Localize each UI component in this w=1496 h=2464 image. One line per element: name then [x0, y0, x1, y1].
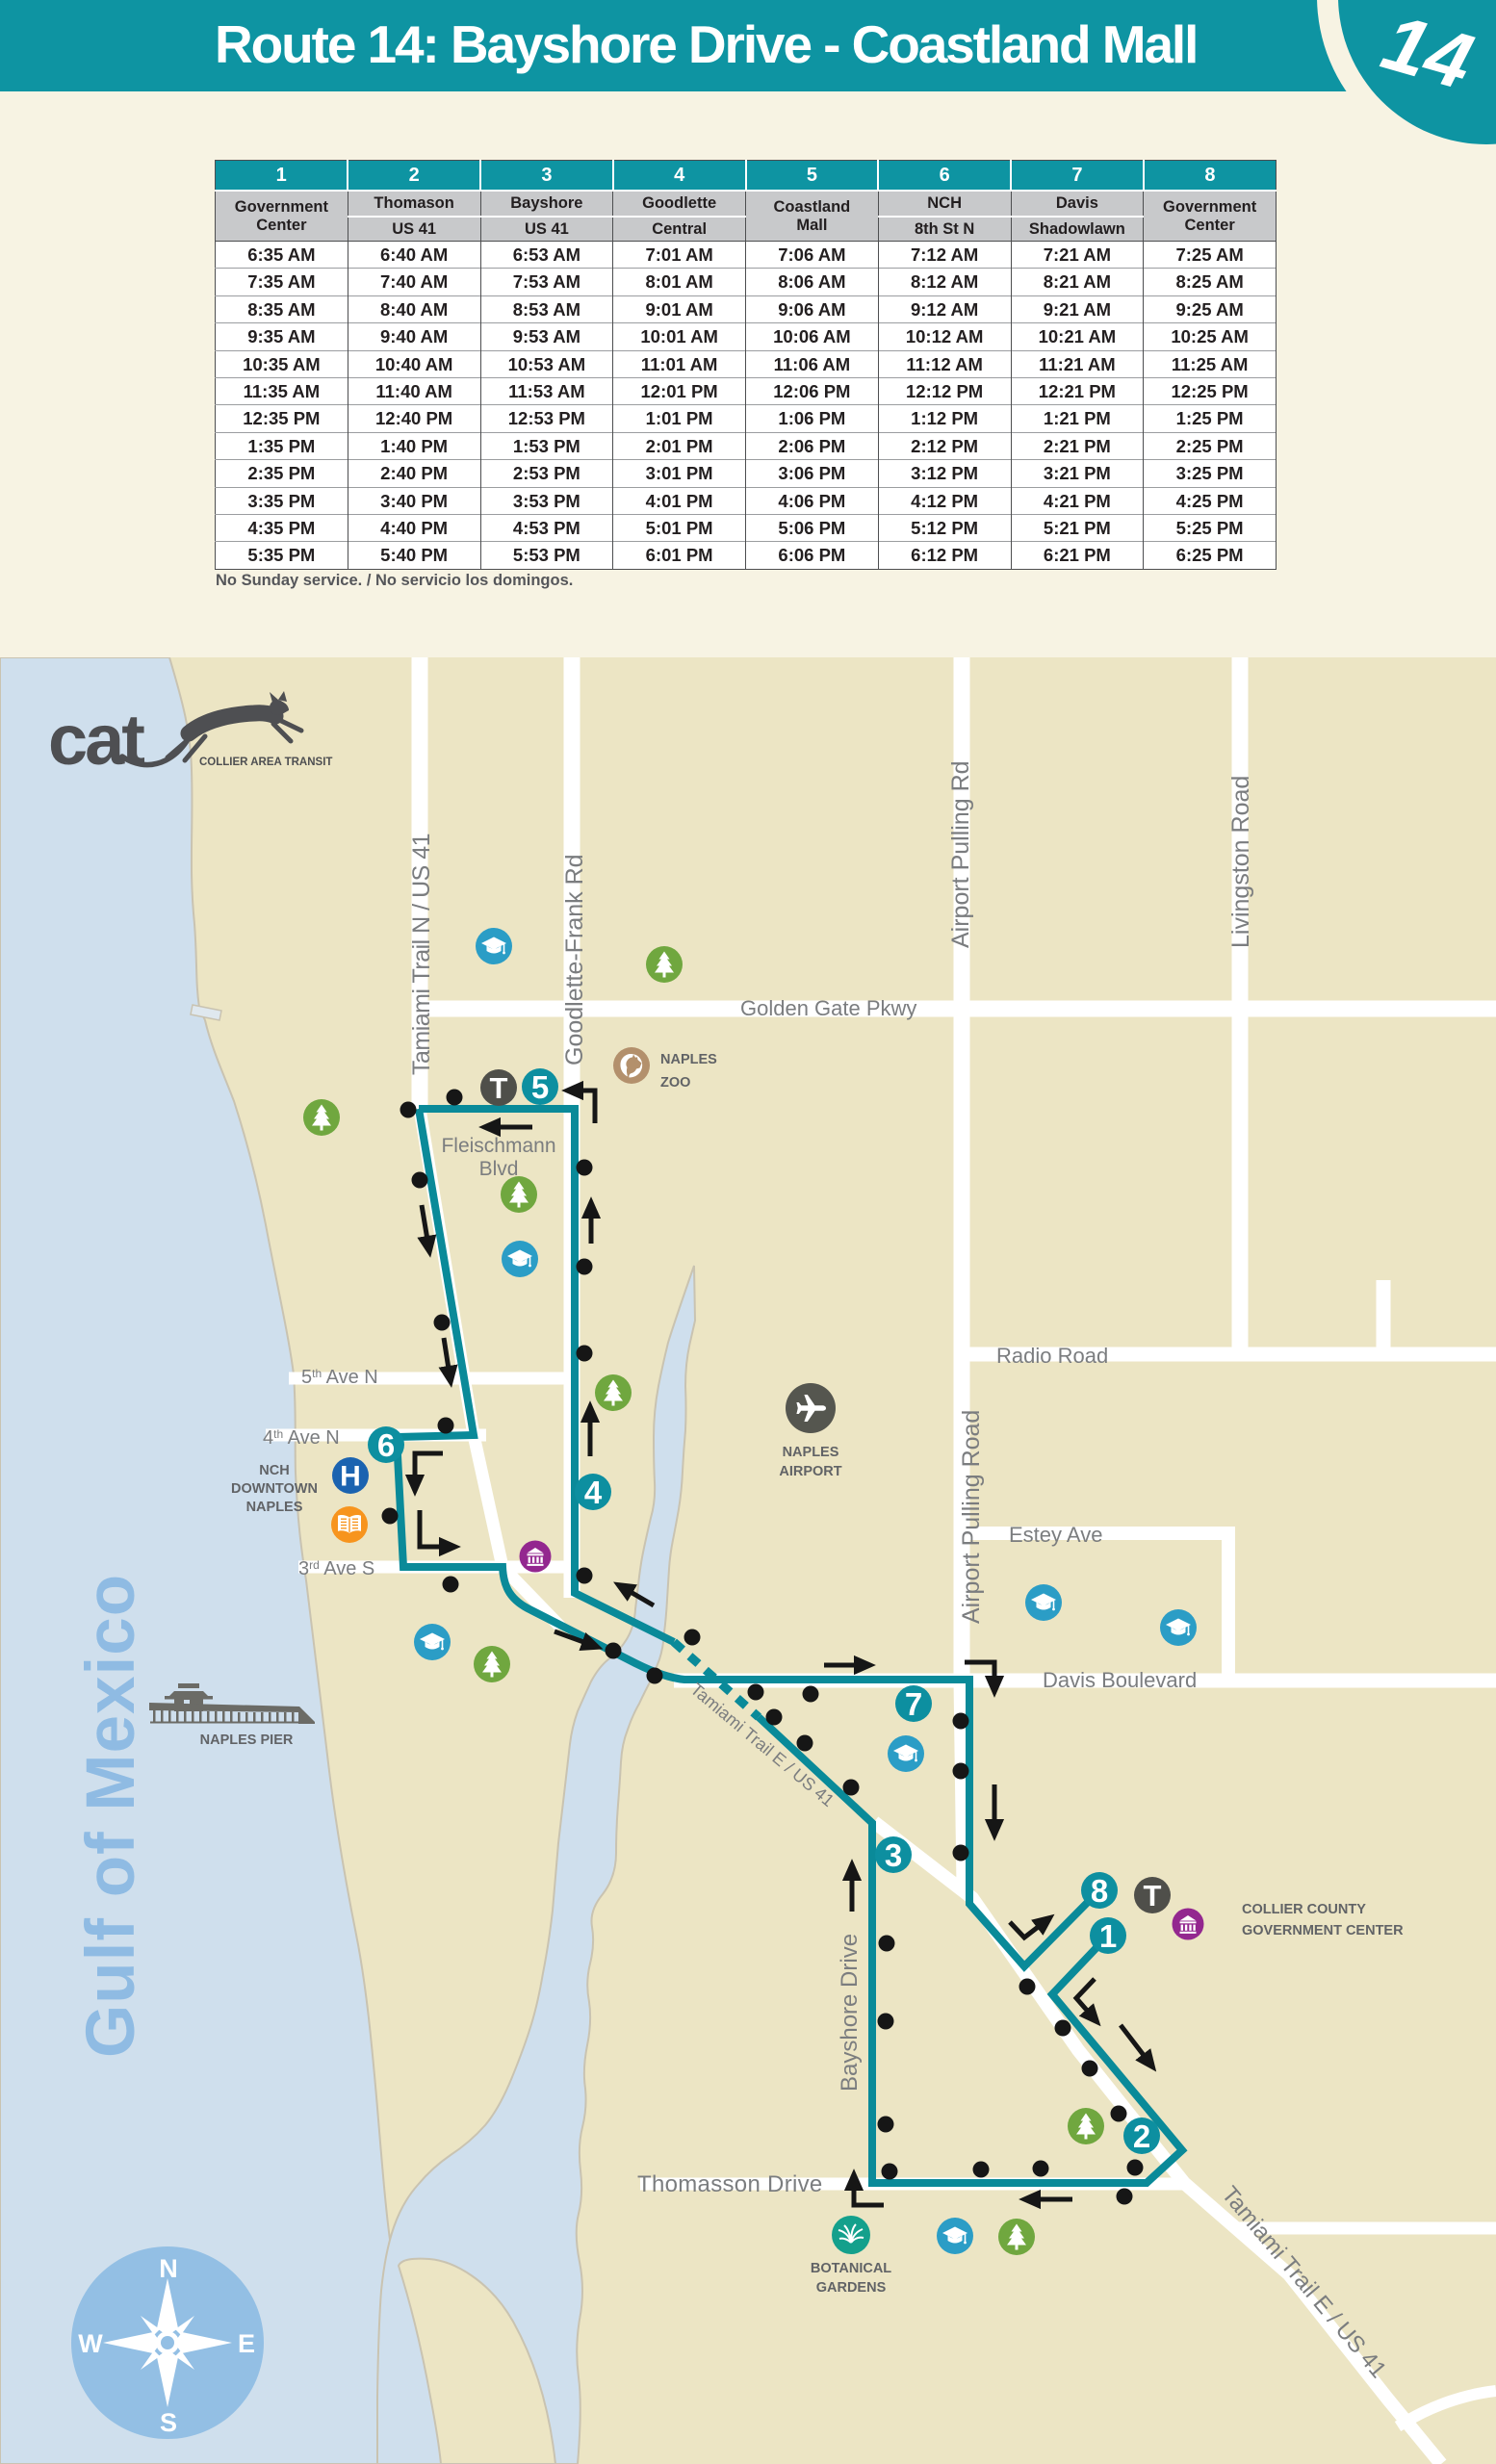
svg-text:COLLIER AREA TRANSIT: COLLIER AREA TRANSIT: [199, 757, 332, 768]
svg-text:Thomasson Drive: Thomasson Drive: [637, 2171, 823, 2197]
svg-text:7: 7: [905, 1686, 922, 1722]
svg-text:GARDENS: GARDENS: [816, 2280, 887, 2296]
svg-text:Radio Road: Radio Road: [996, 1344, 1108, 1368]
svg-text:Goodlette-Frank Rd: Goodlette-Frank Rd: [561, 854, 588, 1065]
svg-text:NAPLES: NAPLES: [660, 1052, 717, 1067]
svg-text:Bayshore Drive: Bayshore Drive: [837, 1934, 863, 2092]
svg-text:NCH: NCH: [259, 1463, 289, 1478]
svg-text:E: E: [238, 2329, 255, 2358]
svg-text:3: 3: [885, 1837, 902, 1873]
svg-text:Livingston Road: Livingston Road: [1227, 776, 1254, 948]
svg-text:Davis Boulevard: Davis Boulevard: [1043, 1668, 1197, 1692]
svg-text:NAPLES PIER: NAPLES PIER: [200, 1732, 294, 1748]
svg-text:Fleischmann: Fleischmann: [441, 1135, 555, 1157]
svg-text:NAPLES: NAPLES: [783, 1445, 839, 1460]
svg-text:6: 6: [377, 1427, 395, 1463]
svg-text:W: W: [78, 2329, 103, 2358]
svg-text:1: 1: [1099, 1918, 1117, 1954]
svg-text:Airport Pulling Road: Airport Pulling Road: [958, 1410, 985, 1624]
svg-text:Airport Pulling Rd: Airport Pulling Rd: [947, 760, 974, 948]
svg-text:GOVERNMENT CENTER: GOVERNMENT CENTER: [1242, 1923, 1404, 1938]
svg-text:Golden Gate Pkwy: Golden Gate Pkwy: [740, 996, 916, 1020]
svg-text:DOWNTOWN: DOWNTOWN: [231, 1481, 318, 1497]
svg-text:Estey Ave: Estey Ave: [1009, 1523, 1102, 1547]
svg-text:cat: cat: [48, 700, 144, 780]
svg-text:8: 8: [1091, 1873, 1108, 1909]
svg-text:H: H: [340, 1461, 361, 1493]
svg-text:COLLIER COUNTY: COLLIER COUNTY: [1242, 1902, 1366, 1917]
svg-text:2: 2: [1133, 2118, 1150, 2154]
svg-text:AIRPORT: AIRPORT: [779, 1464, 841, 1479]
svg-text:N: N: [159, 2254, 178, 2283]
svg-text:Tamiami Trail N / US 41: Tamiami Trail N / US 41: [408, 834, 435, 1075]
svg-text:S: S: [160, 2408, 177, 2437]
svg-text:NAPLES: NAPLES: [246, 1500, 303, 1515]
svg-text:Gulf of Mexico: Gulf of Mexico: [73, 1574, 149, 2058]
svg-text:4: 4: [584, 1475, 603, 1510]
svg-text:ZOO: ZOO: [660, 1075, 690, 1091]
svg-text:BOTANICAL: BOTANICAL: [811, 2261, 891, 2276]
svg-text:Blvd: Blvd: [479, 1158, 519, 1180]
svg-text:5: 5: [531, 1069, 549, 1105]
